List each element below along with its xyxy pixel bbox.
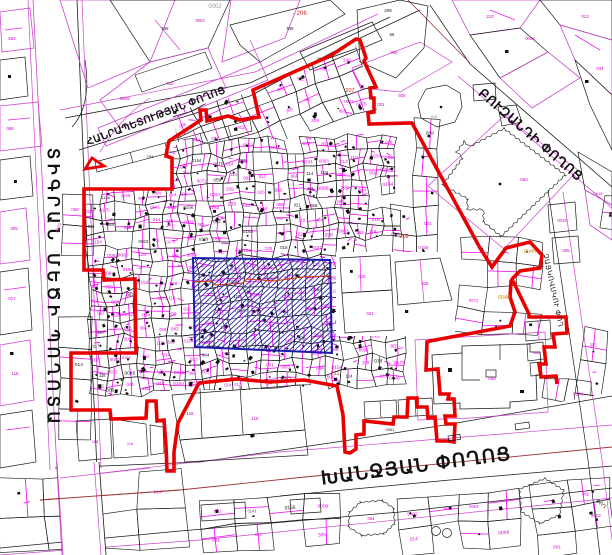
svg-text:0046: 0046 (174, 370, 184, 375)
svg-text:064: 064 (368, 516, 376, 521)
svg-text:017: 017 (91, 298, 99, 303)
svg-text:065: 065 (563, 248, 571, 253)
svg-text:0187: 0187 (85, 209, 95, 214)
svg-text:0002: 0002 (208, 4, 222, 10)
svg-text:0141: 0141 (302, 159, 313, 164)
svg-text:062: 062 (582, 491, 590, 496)
svg-text:0164: 0164 (173, 381, 184, 387)
svg-text:209: 209 (226, 187, 234, 192)
svg-text:208: 208 (384, 8, 392, 13)
svg-text:0063: 0063 (139, 239, 149, 244)
svg-text:014: 014 (153, 217, 161, 223)
svg-text:0141: 0141 (247, 509, 257, 514)
svg-text:0156: 0156 (101, 195, 111, 200)
svg-text:0187: 0187 (91, 357, 102, 362)
svg-text:021: 021 (424, 221, 432, 226)
svg-text:044: 044 (303, 141, 311, 146)
svg-text:058: 058 (276, 202, 284, 207)
svg-text:0164: 0164 (380, 167, 391, 173)
svg-text:017: 017 (92, 344, 100, 349)
svg-text:0175: 0175 (99, 207, 110, 213)
svg-text:0072: 0072 (243, 143, 253, 148)
svg-text:066: 066 (533, 350, 540, 355)
svg-text:0164: 0164 (382, 182, 393, 188)
svg-text:068: 068 (6, 126, 14, 131)
svg-text:013: 013 (340, 159, 348, 165)
svg-text:0099: 0099 (121, 193, 131, 198)
svg-text:017: 017 (8, 296, 16, 301)
svg-text:0072: 0072 (107, 370, 118, 375)
svg-text:066: 066 (168, 205, 176, 211)
svg-text:0045: 0045 (524, 249, 536, 255)
svg-text:209: 209 (311, 118, 319, 124)
svg-text:001: 001 (377, 102, 385, 107)
svg-text:014: 014 (75, 362, 83, 368)
svg-text:207: 207 (345, 88, 354, 94)
svg-text:9002: 9002 (238, 159, 249, 164)
svg-text:158: 158 (162, 26, 170, 31)
svg-text:062: 062 (126, 293, 134, 298)
svg-text:0175: 0175 (356, 102, 367, 107)
svg-text:118: 118 (92, 439, 99, 444)
svg-text:118: 118 (12, 371, 20, 376)
svg-text:017: 017 (259, 174, 267, 179)
svg-text:018: 018 (372, 217, 380, 223)
svg-text:062: 062 (243, 175, 251, 181)
svg-text:021: 021 (124, 325, 132, 331)
svg-text:506: 506 (398, 93, 406, 98)
svg-text:062: 062 (197, 222, 205, 227)
svg-text:0187: 0187 (312, 245, 322, 250)
svg-text:025: 025 (358, 274, 366, 279)
svg-text:118: 118 (187, 411, 195, 416)
svg-text:0156: 0156 (241, 248, 252, 254)
svg-text:0015: 0015 (557, 218, 567, 223)
svg-text:062: 062 (138, 196, 146, 201)
svg-text:014: 014 (410, 536, 419, 542)
svg-text:210: 210 (486, 14, 494, 19)
svg-text:116: 116 (252, 416, 260, 421)
svg-text:114: 114 (306, 171, 314, 176)
svg-text:305: 305 (590, 343, 598, 348)
svg-text:001: 001 (266, 362, 274, 368)
svg-text:118: 118 (299, 218, 306, 223)
svg-text:0063: 0063 (469, 504, 479, 509)
svg-text:209: 209 (180, 191, 188, 196)
svg-text:025: 025 (257, 190, 265, 195)
svg-text:68: 68 (390, 32, 395, 37)
svg-text:018: 018 (388, 155, 396, 160)
svg-text:0099: 0099 (317, 186, 328, 192)
svg-text:ՏԻԳՐԱՆ ՄԵԾԻ ՊՈՂՈՏԱ: ՏԻԳՐԱՆ ՄԵԾԻ ՊՈՂՈՏԱ (44, 148, 61, 428)
svg-text:001: 001 (390, 343, 399, 349)
svg-text:209: 209 (228, 201, 237, 207)
svg-text:118: 118 (168, 295, 176, 300)
svg-text:171: 171 (157, 368, 164, 373)
svg-text:018: 018 (431, 114, 438, 119)
svg-text:0156: 0156 (123, 267, 134, 272)
svg-text:017: 017 (190, 357, 198, 363)
svg-text:066: 066 (188, 371, 196, 376)
svg-text:013: 013 (184, 306, 192, 311)
svg-text:0040: 0040 (498, 295, 510, 301)
svg-text:025: 025 (265, 246, 273, 251)
svg-text:018: 018 (374, 358, 383, 364)
svg-text:068: 068 (276, 216, 283, 221)
svg-text:001: 001 (553, 544, 561, 549)
svg-text:502: 502 (167, 81, 175, 86)
svg-text:118: 118 (307, 186, 315, 191)
svg-text:9002: 9002 (407, 512, 418, 517)
svg-text:014: 014 (154, 490, 162, 496)
svg-text:058: 058 (105, 285, 113, 290)
svg-text:209: 209 (343, 57, 351, 62)
svg-text:0099: 0099 (187, 252, 198, 257)
svg-text:0154: 0154 (122, 355, 132, 360)
svg-text:753: 753 (147, 154, 154, 159)
svg-text:118: 118 (138, 252, 146, 258)
svg-text:025: 025 (172, 253, 180, 258)
svg-text:0164: 0164 (209, 205, 220, 210)
svg-text:014: 014 (166, 218, 174, 223)
svg-text:066: 066 (309, 203, 317, 209)
svg-text:021: 021 (366, 311, 374, 316)
svg-text:305: 305 (10, 226, 18, 231)
svg-text:118: 118 (369, 229, 377, 234)
svg-text:118: 118 (99, 373, 106, 378)
svg-text:502: 502 (8, 36, 16, 41)
svg-text:116: 116 (127, 441, 133, 446)
svg-text:211: 211 (331, 371, 340, 377)
svg-text:068: 068 (291, 174, 299, 179)
svg-text:0046: 0046 (124, 371, 135, 377)
svg-text:017: 017 (234, 382, 242, 387)
svg-text:044: 044 (202, 353, 210, 359)
svg-text:058: 058 (369, 171, 377, 176)
svg-text:209: 209 (362, 360, 370, 365)
svg-text:066: 066 (275, 188, 284, 194)
svg-text:066: 066 (140, 325, 148, 330)
svg-text:021: 021 (294, 203, 302, 208)
svg-text:0072: 0072 (469, 298, 479, 304)
svg-text:0141: 0141 (573, 391, 584, 397)
svg-text:017: 017 (97, 311, 105, 316)
svg-text:028: 028 (421, 281, 429, 286)
svg-text:044: 044 (156, 381, 165, 387)
svg-text:068: 068 (111, 299, 119, 305)
svg-text:0063: 0063 (335, 172, 345, 177)
svg-text:0175: 0175 (394, 360, 405, 366)
svg-text:068: 068 (339, 109, 347, 114)
svg-text:0063: 0063 (210, 192, 221, 197)
svg-text:014: 014 (163, 352, 171, 357)
svg-text:- 206: - 206 (293, 11, 307, 17)
svg-text:044: 044 (597, 66, 605, 71)
svg-text:068: 068 (426, 131, 434, 136)
svg-text:062: 062 (321, 141, 329, 146)
svg-text:209: 209 (168, 312, 177, 318)
svg-text:0141: 0141 (150, 205, 160, 210)
svg-text:508: 508 (123, 225, 131, 230)
svg-text:062: 062 (171, 326, 179, 331)
svg-text:044: 044 (126, 382, 134, 387)
svg-text:068: 068 (170, 281, 178, 286)
svg-text:0061: 0061 (386, 427, 396, 432)
svg-text:068: 068 (159, 327, 167, 332)
svg-text:013: 013 (581, 14, 589, 19)
svg-text:305: 305 (318, 532, 327, 539)
svg-text:018: 018 (385, 139, 393, 144)
svg-text:209: 209 (341, 185, 349, 190)
svg-text:9002: 9002 (118, 252, 129, 257)
svg-text:062: 062 (520, 177, 528, 182)
svg-text:9608: 9608 (120, 96, 130, 101)
svg-text:0099: 0099 (318, 503, 329, 509)
svg-text:021: 021 (212, 538, 220, 543)
svg-text:0164: 0164 (243, 229, 254, 234)
svg-text:508: 508 (287, 26, 295, 31)
svg-text:114: 114 (345, 374, 353, 379)
svg-text:058: 058 (488, 376, 496, 381)
svg-text:058: 058 (325, 232, 334, 238)
svg-text:209: 209 (399, 234, 408, 240)
svg-text:209: 209 (142, 386, 150, 391)
svg-text:058: 058 (213, 177, 221, 182)
svg-text:062: 062 (236, 125, 245, 131)
svg-text:044: 044 (316, 366, 324, 372)
svg-text:0072: 0072 (197, 179, 208, 184)
svg-text:0175: 0175 (166, 239, 176, 244)
svg-text:058: 058 (71, 207, 79, 212)
svg-text:018: 018 (280, 245, 288, 250)
svg-text:508: 508 (106, 387, 114, 392)
svg-text:0099: 0099 (359, 348, 369, 353)
svg-text:014: 014 (243, 203, 251, 209)
svg-text:014: 014 (226, 161, 234, 166)
svg-text:305: 305 (391, 50, 399, 55)
svg-text:0063: 0063 (319, 158, 329, 163)
svg-text:014: 014 (224, 382, 232, 387)
svg-text:0099: 0099 (498, 530, 510, 537)
svg-text:0187: 0187 (97, 329, 107, 334)
svg-text:0072: 0072 (184, 220, 195, 225)
svg-text:0046: 0046 (525, 36, 535, 41)
svg-text:062: 062 (255, 532, 263, 538)
svg-text:0002: 0002 (195, 18, 205, 23)
svg-text:044: 044 (88, 224, 96, 229)
svg-text:0164: 0164 (192, 158, 202, 163)
svg-text:209: 209 (280, 352, 288, 357)
svg-text:118: 118 (233, 294, 241, 300)
svg-text:0015: 0015 (594, 191, 604, 196)
